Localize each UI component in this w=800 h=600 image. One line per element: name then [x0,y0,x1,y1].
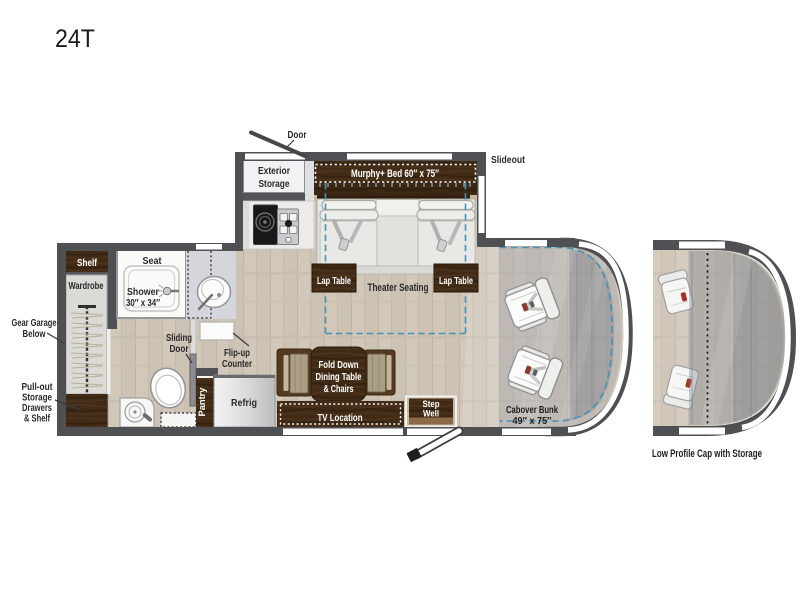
svg-text:Shelf: Shelf [77,258,98,269]
svg-text:Counter: Counter [222,358,252,370]
svg-text:& Chairs: & Chairs [324,383,354,395]
svg-text:& Shelf: & Shelf [24,414,51,425]
svg-text:30″ x 34″: 30″ x 34″ [126,298,160,309]
svg-text:Fold Down: Fold Down [319,359,359,371]
svg-text:Theater Seating: Theater Seating [368,282,429,294]
svg-text:49″ x 75″: 49″ x 75″ [513,415,552,427]
svg-text:TV Location: TV Location [318,412,363,424]
svg-text:Drawers: Drawers [22,403,52,414]
svg-text:Refrig: Refrig [231,397,257,409]
svg-text:Lap Table: Lap Table [317,275,351,287]
svg-text:Shower: Shower [127,287,159,298]
svg-text:Pantry: Pantry [197,387,208,417]
svg-text:Murphy+ Bed 60″ x 75″: Murphy+ Bed 60″ x 75″ [351,168,440,180]
svg-text:Wardrobe: Wardrobe [69,281,104,292]
svg-text:Lap Table: Lap Table [439,275,473,287]
svg-text:Well: Well [423,409,439,420]
svg-text:Dining Table: Dining Table [316,371,362,383]
svg-text:Slideout: Slideout [491,154,525,166]
svg-text:24T: 24T [55,25,95,53]
svg-text:Storage: Storage [259,178,290,190]
svg-text:Seat: Seat [143,256,163,267]
svg-text:Door: Door [170,343,189,355]
svg-text:Door: Door [288,130,307,141]
svg-text:Exterior: Exterior [258,165,290,177]
svg-text:Pull-out: Pull-out [22,382,54,393]
svg-text:Storage: Storage [22,393,52,404]
svg-text:Low Profile Cap with Storage: Low Profile Cap with Storage [652,448,762,460]
svg-text:Gear Garage: Gear Garage [12,318,57,329]
svg-text:Below: Below [23,329,46,340]
